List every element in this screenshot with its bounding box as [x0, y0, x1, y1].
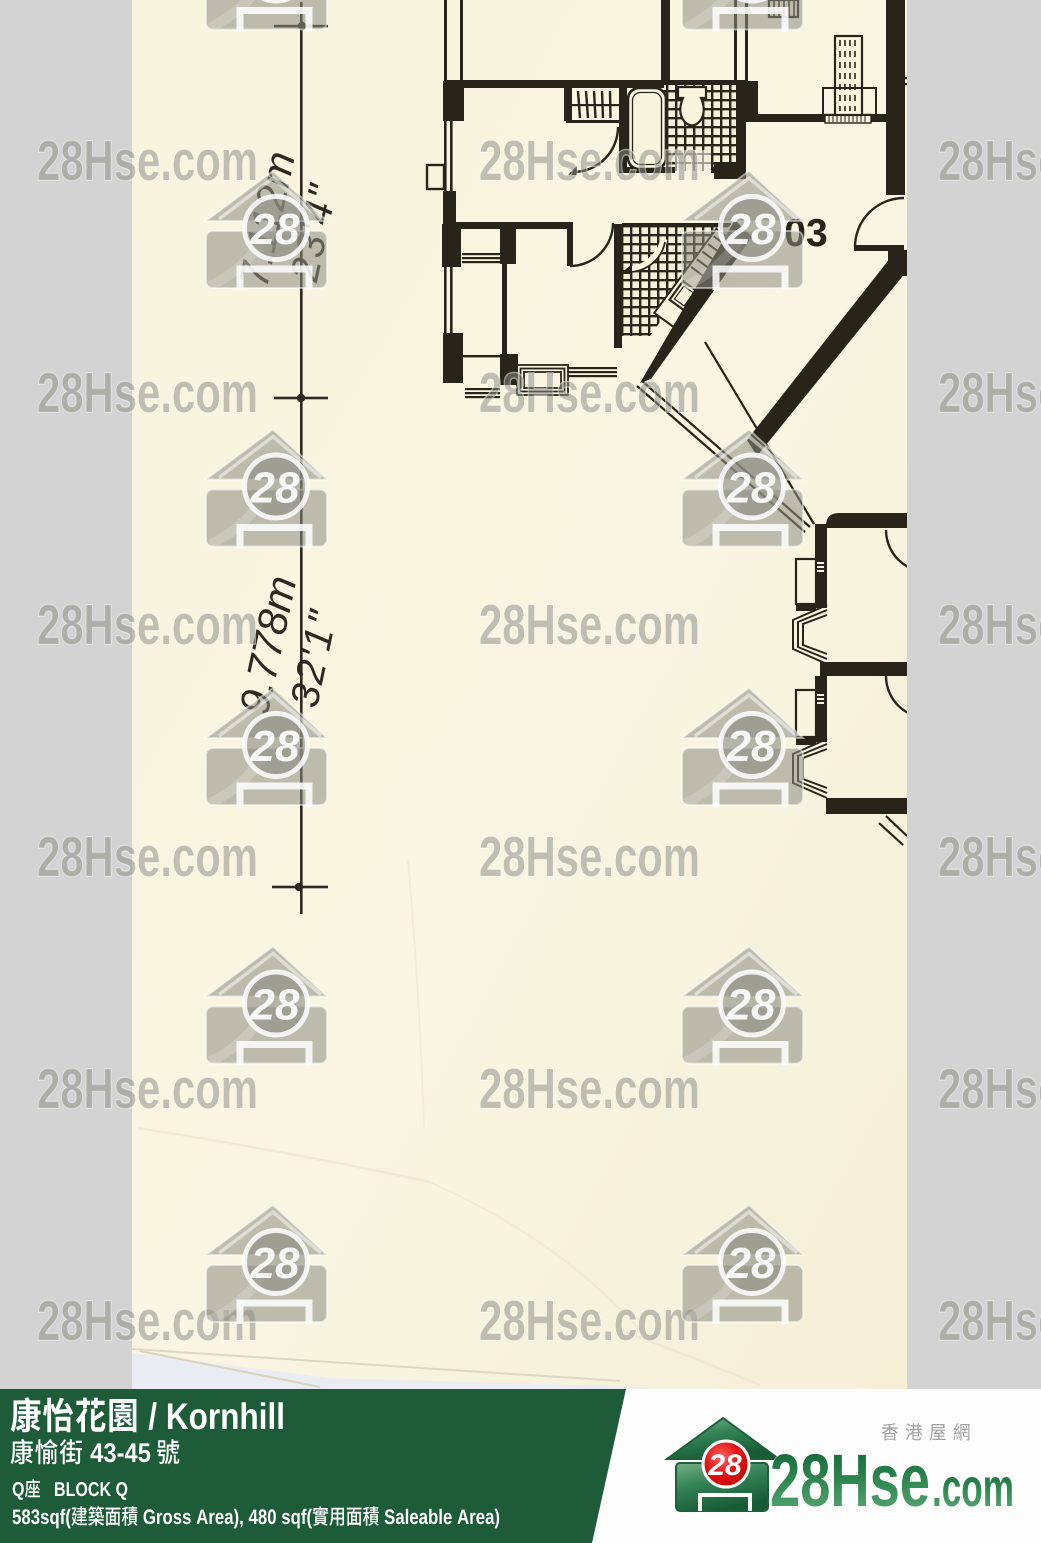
svg-text:28Hse: 28Hse [770, 1439, 930, 1522]
svg-text:28: 28 [707, 1449, 742, 1482]
svg-text:.com: .com [932, 1458, 1014, 1518]
